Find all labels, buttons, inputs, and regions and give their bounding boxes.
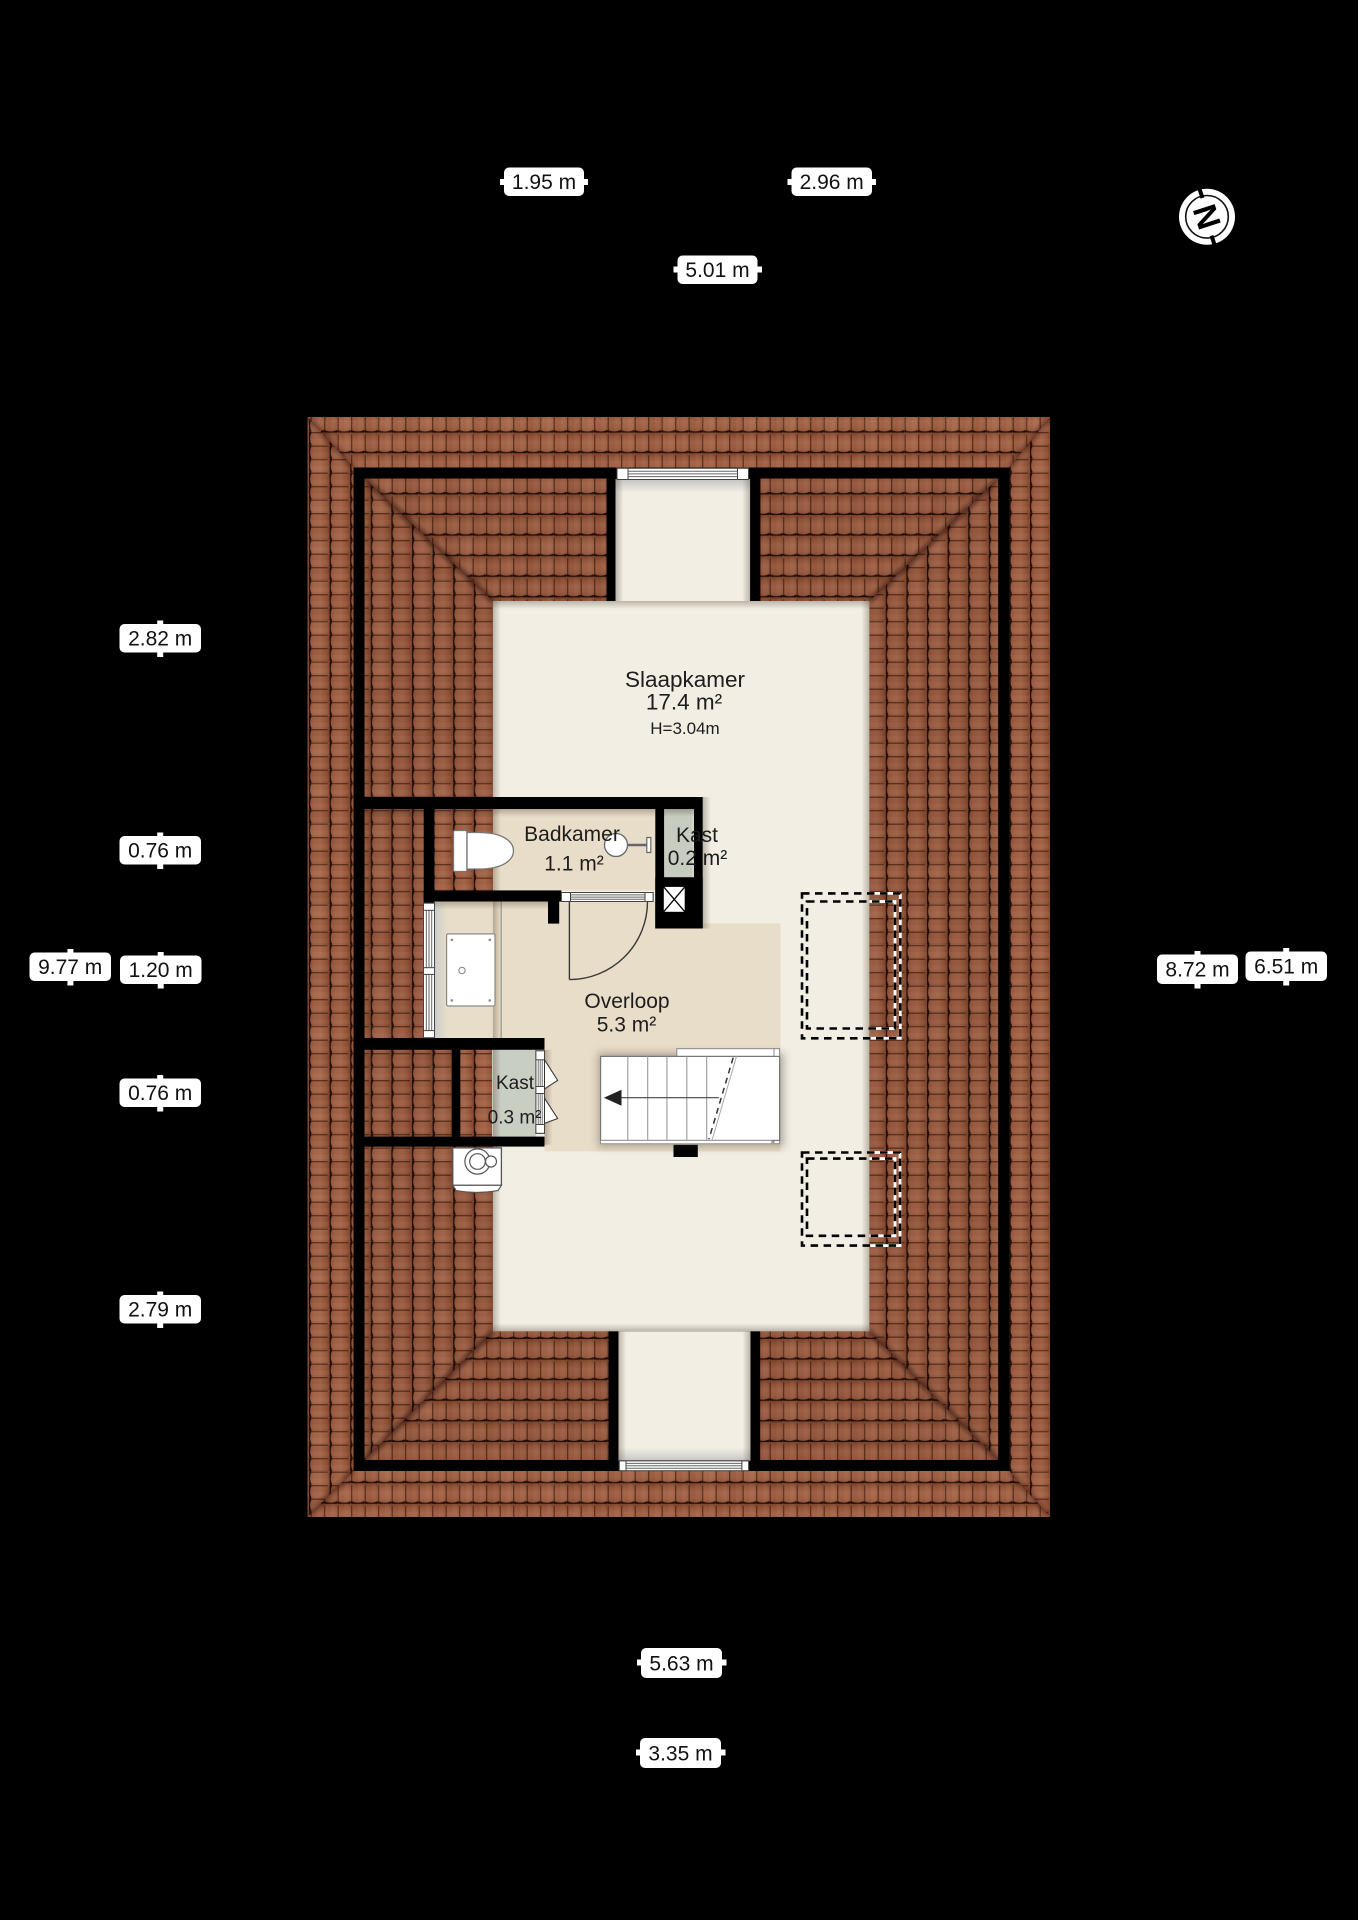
svg-text:Slaapkamer: Slaapkamer (625, 667, 746, 692)
svg-text:Kast: Kast (496, 1073, 535, 1094)
svg-text:0.2 m²: 0.2 m² (668, 847, 728, 870)
svg-text:5.01 m: 5.01 m (685, 259, 749, 282)
svg-text:8.72 m: 8.72 m (1165, 959, 1229, 982)
svg-text:2.79 m: 2.79 m (128, 1299, 192, 1322)
svg-text:1.20 m: 1.20 m (129, 959, 193, 982)
svg-text:2.82 m: 2.82 m (128, 628, 192, 651)
svg-text:Kast: Kast (676, 824, 718, 847)
svg-text:0.3 m²: 0.3 m² (488, 1107, 542, 1128)
svg-text:9.77 m: 9.77 m (38, 956, 102, 979)
svg-text:5.3 m²: 5.3 m² (597, 1014, 657, 1037)
svg-text:1.95 m: 1.95 m (512, 171, 576, 194)
svg-text:Badkamer: Badkamer (524, 823, 620, 846)
svg-text:2.96 m: 2.96 m (800, 171, 864, 194)
svg-text:17.4 m²: 17.4 m² (646, 690, 723, 715)
svg-text:0.76 m: 0.76 m (128, 840, 192, 863)
svg-text:3.35 m: 3.35 m (648, 1743, 712, 1766)
svg-text:1.1 m²: 1.1 m² (544, 853, 604, 876)
svg-text:5.63 m: 5.63 m (649, 1653, 713, 1676)
svg-text:6.51 m: 6.51 m (1254, 956, 1318, 979)
svg-text:H=3.04m: H=3.04m (650, 719, 719, 738)
svg-text:Overloop: Overloop (584, 990, 669, 1013)
svg-text:0.76 m: 0.76 m (128, 1082, 192, 1105)
